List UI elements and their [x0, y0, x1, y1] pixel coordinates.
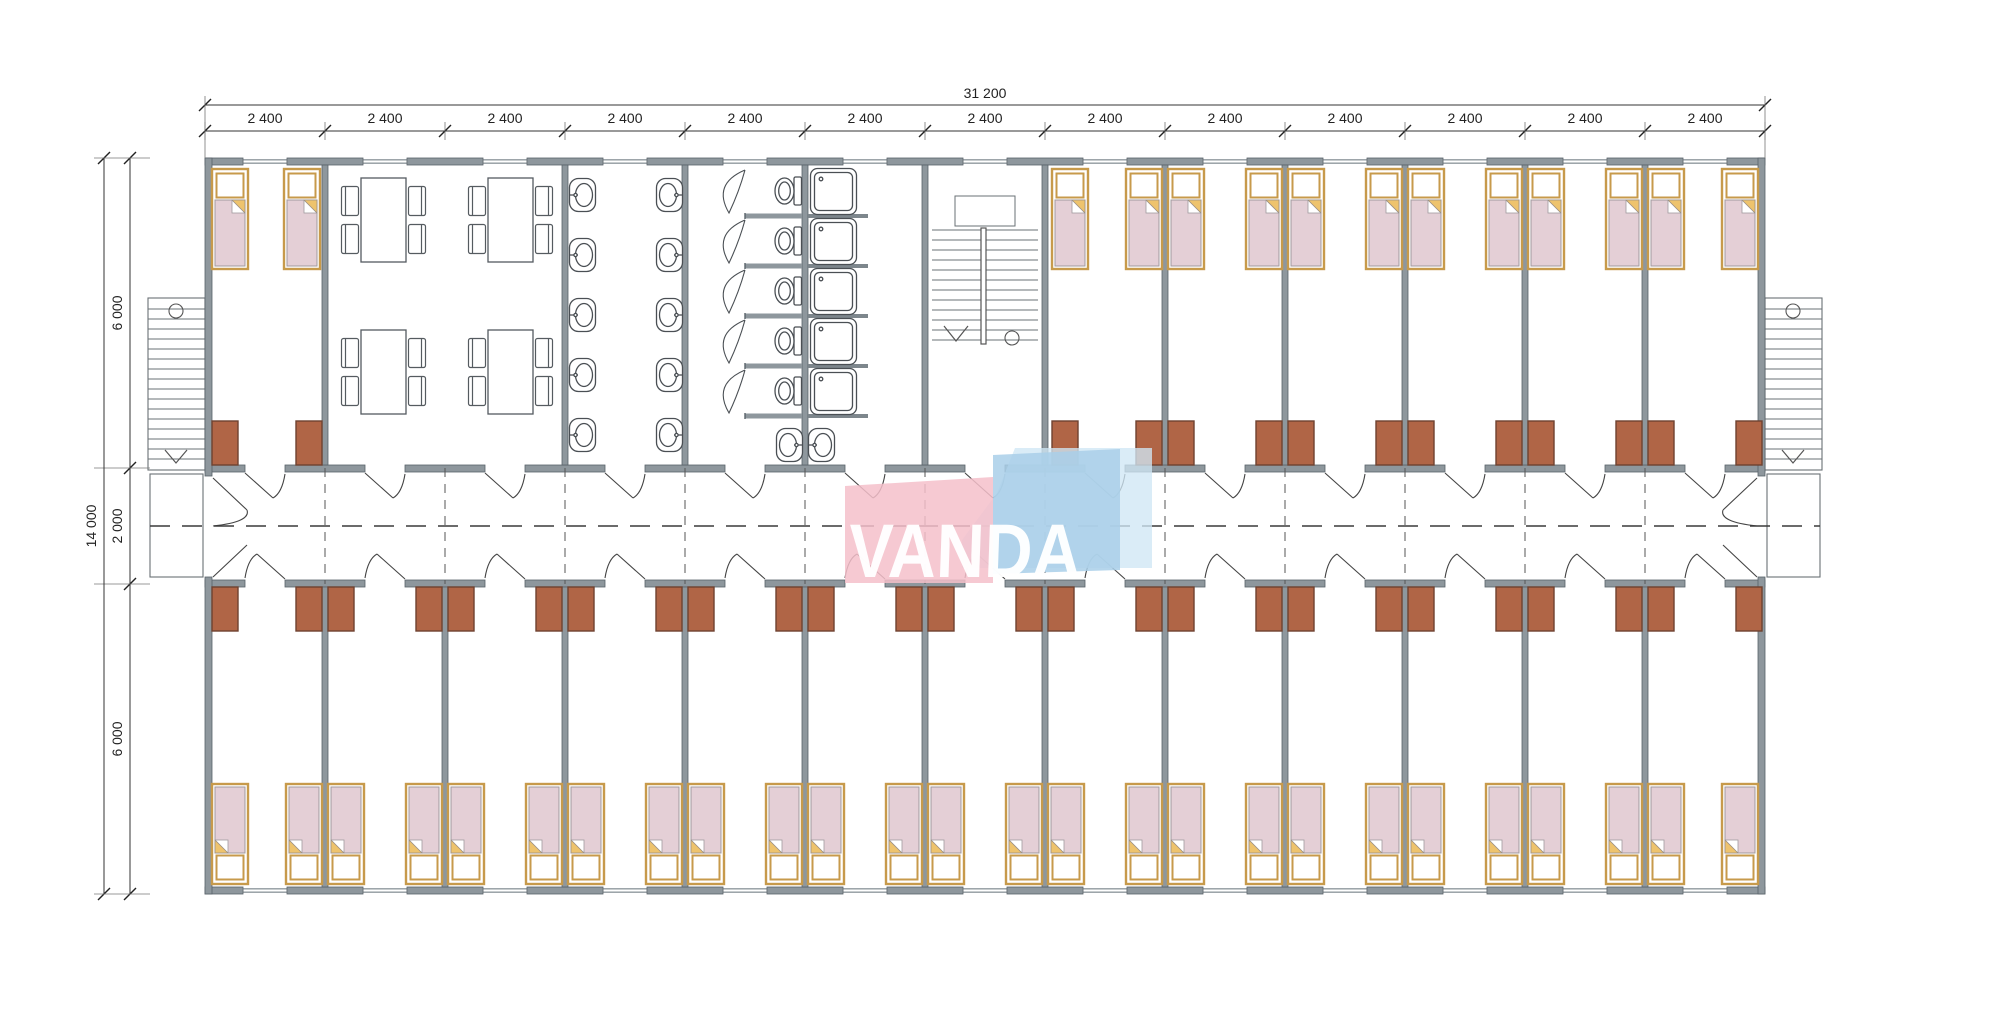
toilet	[775, 177, 802, 205]
bed	[1408, 784, 1444, 884]
wash-basin	[809, 429, 835, 462]
partition-upper	[1042, 165, 1048, 465]
toilet	[775, 227, 802, 255]
partition-upper	[922, 165, 928, 465]
external-stair-right	[1765, 298, 1822, 470]
dim-top-segment-label: 2 400	[727, 110, 762, 126]
dim-top-segment-label: 2 400	[487, 110, 522, 126]
chair	[536, 225, 553, 254]
dining-table	[361, 330, 406, 414]
exterior-wall-bottom	[1487, 887, 1563, 894]
desk	[212, 587, 238, 631]
wash-basin	[657, 419, 683, 452]
door-lower-leaf	[1337, 554, 1365, 579]
door-upper-leaf	[725, 473, 753, 498]
bed	[212, 784, 248, 884]
desk	[808, 587, 834, 631]
door-upper-swing	[1353, 474, 1365, 498]
exterior-wall-top	[887, 158, 963, 165]
door-lower-leaf	[497, 554, 525, 579]
bed	[1528, 169, 1564, 269]
exterior-wall-top	[287, 158, 363, 165]
stairwell-upper-outline	[955, 196, 1015, 226]
dim-top-segment-label: 2 400	[967, 110, 1002, 126]
chair	[469, 225, 486, 254]
bed	[1366, 169, 1402, 269]
desk	[1288, 587, 1314, 631]
wash-basin	[657, 299, 683, 332]
exterior-wall-top	[767, 158, 843, 165]
desk	[1376, 587, 1402, 631]
dim-left-corridor-label: 2 000	[109, 508, 125, 543]
door-lower-swing	[485, 554, 497, 578]
chair	[409, 225, 426, 254]
door-upper-swing	[1593, 474, 1605, 498]
door-lower-swing	[725, 554, 737, 578]
exterior-wall-bottom	[887, 887, 963, 894]
wash-basin	[570, 239, 596, 272]
exterior-wall-bottom	[1607, 887, 1683, 894]
chair	[342, 377, 359, 406]
exterior-wall-top	[1007, 158, 1083, 165]
dim-top-segment-label: 2 400	[1087, 110, 1122, 126]
desk	[1736, 587, 1762, 631]
bed	[1168, 169, 1204, 269]
desk	[1616, 421, 1642, 465]
door-upper-leaf	[1685, 473, 1713, 498]
desk	[212, 421, 238, 465]
bed	[1366, 784, 1402, 884]
desk	[416, 587, 442, 631]
toilet	[775, 327, 802, 355]
wash-basin	[777, 429, 803, 462]
chair	[469, 377, 486, 406]
door-upper-leaf	[1565, 473, 1593, 498]
toilet-stall-door	[723, 320, 745, 363]
exterior-wall-bottom	[1007, 887, 1083, 894]
chair	[536, 187, 553, 216]
desk	[1736, 421, 1762, 465]
desk	[1256, 587, 1282, 631]
chair	[409, 377, 426, 406]
stairwell-rail	[981, 228, 986, 344]
door-corridor-end-swing	[213, 510, 247, 526]
door-upper-leaf	[605, 473, 633, 498]
exterior-wall-bottom	[767, 887, 843, 894]
door-lower-swing	[245, 554, 257, 578]
door-lower-leaf	[257, 554, 285, 579]
desk	[296, 587, 322, 631]
external-stair-left	[148, 298, 205, 470]
door-upper-swing	[513, 474, 525, 498]
exterior-wall-top	[1247, 158, 1323, 165]
bed	[1288, 169, 1324, 269]
toilet-stall-door	[723, 170, 745, 213]
door-lower-swing	[605, 554, 617, 578]
chair	[536, 377, 553, 406]
desk	[448, 587, 474, 631]
desk	[688, 587, 714, 631]
desk	[1408, 587, 1434, 631]
bed	[1606, 169, 1642, 269]
door-lower-leaf	[1577, 554, 1605, 579]
desk	[1496, 587, 1522, 631]
watermark-text: VANDA	[847, 509, 1082, 594]
door-upper-leaf	[365, 473, 393, 498]
floor-plan-svg: 2 4002 4002 4002 4002 4002 4002 4002 400…	[0, 0, 2000, 1032]
bed	[448, 784, 484, 884]
door-lower-leaf	[1697, 554, 1725, 579]
stairwell-down-arrow	[944, 326, 968, 341]
bed	[286, 784, 322, 884]
exterior-wall-top	[407, 158, 483, 165]
dim-left-lower-label: 6 000	[109, 721, 125, 756]
exterior-wall-top	[1127, 158, 1203, 165]
bed	[1722, 784, 1758, 884]
door-upper-swing	[393, 474, 405, 498]
door-upper-swing	[1473, 474, 1485, 498]
bed	[646, 784, 682, 884]
partition-upper	[322, 165, 328, 465]
desk	[1376, 421, 1402, 465]
desk	[1616, 587, 1642, 631]
dim-top-segment-label: 2 400	[247, 110, 282, 126]
exterior-wall-bottom	[527, 887, 603, 894]
door-corridor-end-leaf	[213, 478, 247, 510]
door-lower-leaf	[617, 554, 645, 579]
bed	[1288, 784, 1324, 884]
desk	[328, 587, 354, 631]
desk	[568, 587, 594, 631]
wash-basin	[657, 359, 683, 392]
bed	[886, 784, 922, 884]
door-upper-swing	[1233, 474, 1245, 498]
bed	[1168, 784, 1204, 884]
door-corridor-end-leaf	[1723, 545, 1757, 577]
bed	[808, 784, 844, 884]
exterior-wall-bottom	[1367, 887, 1443, 894]
desk	[1648, 587, 1674, 631]
exterior-wall-top	[527, 158, 603, 165]
bed	[766, 784, 802, 884]
desk	[776, 587, 802, 631]
dim-top-segment-label: 2 400	[1207, 110, 1242, 126]
desk	[1528, 587, 1554, 631]
desk	[1288, 421, 1314, 465]
bed	[1052, 169, 1088, 269]
floor-plan-canvas: 2 4002 4002 4002 4002 4002 4002 4002 400…	[0, 0, 2000, 1032]
toilet-stall-door	[723, 220, 745, 263]
door-lower-leaf	[1457, 554, 1485, 579]
chair	[469, 339, 486, 368]
exterior-wall-top	[647, 158, 723, 165]
dining-table	[361, 178, 406, 262]
shower-tray	[811, 169, 857, 215]
door-lower-leaf	[377, 554, 405, 579]
bed	[328, 784, 364, 884]
door-upper-swing	[753, 474, 765, 498]
partition-upper	[562, 165, 568, 465]
door-lower-leaf	[1217, 554, 1245, 579]
wash-basin	[570, 179, 596, 212]
chair	[342, 339, 359, 368]
bed	[212, 169, 248, 269]
bed	[1048, 784, 1084, 884]
door-upper-swing	[273, 474, 285, 498]
toilet	[775, 277, 802, 305]
toilet-stall-door	[723, 370, 745, 413]
door-lower-swing	[1565, 554, 1577, 578]
bed	[688, 784, 724, 884]
door-lower-swing	[1445, 554, 1457, 578]
bed	[1606, 784, 1642, 884]
desk	[1168, 421, 1194, 465]
door-upper-leaf	[1445, 473, 1473, 498]
shower-tray	[811, 319, 857, 365]
door-lower-swing	[1685, 554, 1697, 578]
door-upper-swing	[1713, 474, 1725, 498]
wash-basin	[570, 359, 596, 392]
dim-top-segment-label: 2 400	[367, 110, 402, 126]
chair	[342, 187, 359, 216]
desk	[536, 587, 562, 631]
desk	[1256, 421, 1282, 465]
bed	[1528, 784, 1564, 884]
door-corridor-end-swing	[1723, 510, 1757, 526]
chair	[409, 187, 426, 216]
dim-top-segment-label: 2 400	[1687, 110, 1722, 126]
bed	[928, 784, 964, 884]
dim-top-segment-label: 2 400	[847, 110, 882, 126]
wash-basin	[570, 299, 596, 332]
door-upper-leaf	[485, 473, 513, 498]
bed	[568, 784, 604, 884]
desk	[296, 421, 322, 465]
desk	[1528, 421, 1554, 465]
bed	[1408, 169, 1444, 269]
door-upper-leaf	[1205, 473, 1233, 498]
dim-top-segment-label: 2 400	[607, 110, 642, 126]
chair	[536, 339, 553, 368]
bed	[1246, 169, 1282, 269]
door-upper-leaf	[1325, 473, 1353, 498]
exterior-wall-bottom	[1127, 887, 1203, 894]
door-corridor-end-leaf	[213, 545, 247, 577]
bed	[1648, 784, 1684, 884]
bed	[406, 784, 442, 884]
bed	[1722, 169, 1758, 269]
desk	[1496, 421, 1522, 465]
desk	[1648, 421, 1674, 465]
door-corridor-end-leaf	[1723, 478, 1757, 510]
dim-left-upper-label: 6 000	[109, 295, 125, 330]
bed	[1006, 784, 1042, 884]
dining-table	[488, 330, 533, 414]
desk	[1408, 421, 1434, 465]
bed	[1126, 169, 1162, 269]
bed	[1126, 784, 1162, 884]
wash-basin	[570, 419, 596, 452]
door-lower-swing	[1205, 554, 1217, 578]
door-lower-swing	[365, 554, 377, 578]
chair	[469, 187, 486, 216]
desk	[1168, 587, 1194, 631]
chair	[409, 339, 426, 368]
exterior-wall-top	[1367, 158, 1443, 165]
shower-tray	[811, 369, 857, 415]
exterior-wall-bottom	[407, 887, 483, 894]
chair	[342, 225, 359, 254]
shower-tray	[811, 219, 857, 265]
exterior-wall-top	[1607, 158, 1683, 165]
exterior-wall-bottom	[647, 887, 723, 894]
wash-basin	[657, 239, 683, 272]
dim-top-total-label: 31 200	[964, 85, 1007, 101]
dim-top-segment-label: 2 400	[1567, 110, 1602, 126]
shower-tray	[811, 269, 857, 315]
exterior-wall-top	[1487, 158, 1563, 165]
exterior-wall-bottom	[1247, 887, 1323, 894]
bed	[1486, 784, 1522, 884]
door-upper-swing	[633, 474, 645, 498]
door-upper-leaf	[245, 473, 273, 498]
bed	[1246, 784, 1282, 884]
dim-left-total-label: 14 000	[83, 504, 99, 547]
dim-top-segment-label: 2 400	[1327, 110, 1362, 126]
wash-basin	[657, 179, 683, 212]
exterior-wall-bottom	[287, 887, 363, 894]
desk	[1136, 587, 1162, 631]
bed	[526, 784, 562, 884]
dining-table	[488, 178, 533, 262]
bed	[1648, 169, 1684, 269]
door-lower-swing	[1325, 554, 1337, 578]
toilet	[775, 377, 802, 405]
stairwell-post	[1005, 331, 1019, 345]
toilet-stall-door	[723, 270, 745, 313]
partition-upper	[802, 165, 808, 465]
desk	[656, 587, 682, 631]
door-lower-leaf	[737, 554, 765, 579]
bed	[284, 169, 320, 269]
bed	[1486, 169, 1522, 269]
dim-top-segment-label: 2 400	[1447, 110, 1482, 126]
